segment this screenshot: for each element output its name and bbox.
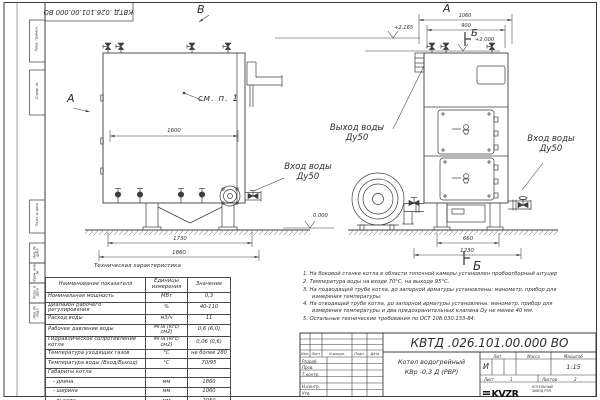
side-outlet-line2: Ду50	[320, 133, 394, 143]
role-tkontr: Т.контр.	[302, 372, 319, 377]
company-name-line2: ЗАВОД РЭП	[532, 389, 553, 393]
elevation-mid: +2.000	[475, 37, 494, 43]
sheet-label: Лист	[484, 377, 494, 382]
spec-cell	[146, 368, 188, 378]
front-inlet-line1: Вход воды	[276, 162, 340, 172]
dim-1730: 1730	[165, 236, 195, 242]
spec-cell: МПа (кгс/см2)	[146, 337, 188, 349]
spec-cell: 0,3	[188, 293, 231, 303]
spec-cell: не более 280	[188, 349, 231, 359]
dim-1600: 1600	[159, 128, 189, 134]
note-2: 2. Температура воды на входе 70°С, на вы…	[303, 279, 577, 286]
side-inlet-line1: Вход воды	[517, 134, 585, 144]
spec-cell	[188, 368, 231, 378]
spec-cell: - длина	[46, 378, 146, 388]
margin-stamp-perv-primen: Перв. примен.	[35, 18, 38, 60]
company-logo: KVZR	[483, 384, 518, 400]
spec-cell: 0,06 (0,6)	[188, 337, 231, 349]
side-inlet-label: Вход воды Ду50	[517, 134, 585, 154]
spec-cell: Номинальная мощность	[46, 293, 146, 303]
spec-row: Гидравлическое сопротивление котлаМПа (к…	[46, 337, 231, 349]
note-5: 5. Остальные технические требования по О…	[303, 316, 577, 323]
elevation-top: +2.165	[394, 25, 413, 31]
dim-1060: 1060	[450, 13, 480, 19]
role-prov: Пров.	[302, 365, 314, 370]
designation-top: КВТД .026.101.00.000 ВО	[45, 4, 133, 19]
spec-row: Температура воды (Вход/Выход)°С70/95	[46, 359, 231, 369]
scale-value: 1:15	[551, 363, 596, 371]
margin-stamp-sprav-n: Справ. №	[35, 68, 38, 113]
product-name: Котел водогрейный КВр -0,3 Д (РВР)	[384, 358, 479, 378]
kvzr-logo-icon	[483, 391, 490, 398]
spec-header-units: Единицы измерения	[146, 278, 188, 293]
spec-cell: Габариты котла	[46, 368, 146, 378]
spec-cell: Температура уходящих газов	[46, 349, 146, 359]
rev-header-izm: Изм.	[300, 352, 310, 356]
spec-cell: °С	[146, 359, 188, 369]
spec-cell: Диапазон рабочего регулирования	[46, 302, 146, 314]
spec-row: - ширинамм1060	[46, 387, 231, 397]
front-view-arrow-label: А	[67, 92, 75, 105]
spec-cell: м3/ч	[146, 315, 188, 325]
spec-cell: 1060	[188, 387, 231, 397]
product-name-line1: Котел водогрейный	[384, 358, 479, 368]
side-outlet-line1: Выход воды	[320, 123, 394, 133]
lit-value: И	[480, 362, 492, 371]
spec-row: Номинальная мощностьМВт0,3	[46, 293, 231, 303]
side-inlet-line2: Ду50	[517, 144, 585, 154]
front-view-label: В	[197, 3, 205, 16]
side-outlet-label: Выход воды Ду50	[320, 123, 394, 143]
spec-row: Габариты котла	[46, 368, 231, 378]
note-1: 1. На боковой стенке котла в области топ…	[303, 271, 577, 278]
spec-cell: МВт	[146, 293, 188, 303]
scale-label: Масштаб	[551, 354, 596, 359]
spec-cell: - ширина	[46, 387, 146, 397]
note-4: 4. На отводящей трубе котла, до запорной…	[303, 301, 577, 315]
spec-row: Рабочее давление водыМПа (кгс/см2)0,6 (6…	[46, 324, 231, 336]
see-note-label: см. п. 1	[198, 94, 239, 104]
sheet-value: 1	[510, 377, 513, 382]
spec-cell: Температура воды (Вход/Выход)	[46, 359, 146, 369]
spec-cell: 11	[188, 315, 231, 325]
spec-table-title: Техническая характеристика	[45, 263, 230, 269]
spec-row: Расход водым3/ч11	[46, 315, 231, 325]
spec-cell: МПа (кгс/см2)	[146, 324, 188, 336]
spec-cell: 1860	[188, 378, 231, 388]
spec-cell: Гидравлическое сопротивление котла	[46, 337, 146, 349]
front-inlet-label: Вход воды Ду50	[276, 162, 340, 182]
spec-cell: Рабочее давление воды	[46, 324, 146, 336]
technical-notes: 1. На боковой стенке котла в области топ…	[303, 271, 577, 324]
margin-stamp-inv-podl: Инв. № подл.	[34, 302, 41, 322]
spec-header-row: Наименование показателя Единицы измерени…	[46, 278, 231, 293]
sheets-label: Листов	[542, 377, 557, 382]
spec-cell: мм	[146, 387, 188, 397]
margin-stamp-inv-dubl: Инв. № дубл.	[34, 242, 41, 262]
spec-table: Наименование показателя Единицы измерени…	[45, 277, 231, 400]
role-nkontr: Н.контр.	[302, 384, 320, 389]
rev-header-podp: Подп.	[352, 352, 367, 356]
spec-cell: 0,6 (6,0)	[188, 324, 231, 336]
dim-1230: 1230	[452, 248, 482, 254]
kvzr-logo-text: KVZR	[492, 389, 519, 400]
margin-stamp-podp-data-1: Подп. и дата	[35, 198, 38, 231]
rev-header-ndokum: N докум.	[322, 352, 352, 356]
company-name: КОТЕЛЬНЫЙ ЗАВОД РЭП	[532, 385, 553, 393]
sheets-value: 2	[574, 377, 577, 382]
spec-cell: 70/95	[188, 359, 231, 369]
role-razrab: Разраб.	[302, 359, 318, 364]
lit-label: Лит.	[480, 354, 516, 359]
spec-cell: Расход воды	[46, 315, 146, 325]
note-3: 3. На подводящей трубе котла, до запорно…	[303, 287, 577, 301]
spec-cell: 40-110	[188, 302, 231, 314]
title-block-designation: КВТД .026.101.00.000 ВО	[385, 335, 594, 351]
format-note: Формат А3	[543, 395, 577, 400]
spec-cell: °С	[146, 349, 188, 359]
product-name-line2: КВр -0,3 Д (РВР)	[384, 368, 479, 378]
spec-row: - длинамм1860	[46, 378, 231, 388]
role-utv: Утв.	[302, 391, 310, 396]
spec-header-name: Наименование показателя	[46, 278, 146, 293]
rev-header-list: Лист	[310, 352, 322, 356]
drawing-sheet: КВТД .026.101.00.000 ВО Перв. примен. Сп…	[0, 0, 600, 400]
leaders-and-marks	[73, 15, 543, 265]
dim-900: 900	[451, 23, 481, 29]
dim-660: 660	[453, 236, 483, 242]
margin-stamp-vzam-inv: Взам. инв. №	[34, 262, 41, 282]
front-view-linework	[85, 43, 310, 235]
mass-label: Масса	[516, 354, 551, 359]
spec-cell: %	[146, 302, 188, 314]
front-inlet-line2: Ду50	[276, 172, 340, 182]
rev-header-data: Дата	[367, 352, 383, 356]
spec-row: Диапазон рабочего регулирования%40-110	[46, 302, 231, 314]
dim-1860: 1860	[164, 250, 194, 256]
elevation-ground: 0.000	[313, 213, 328, 219]
spec-row: Температура уходящих газов°Сне более 280	[46, 349, 231, 359]
margin-stamp-podp-data-2: Подп. и дата	[34, 282, 41, 302]
spec-header-value: Значение	[188, 278, 231, 293]
spec-cell: мм	[146, 378, 188, 388]
